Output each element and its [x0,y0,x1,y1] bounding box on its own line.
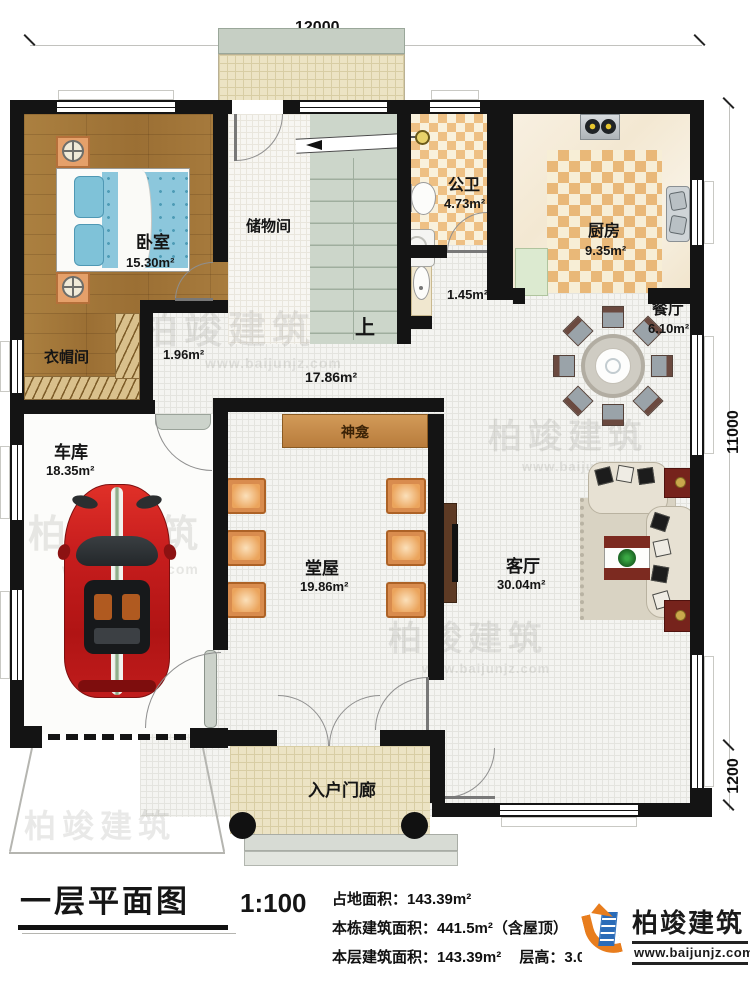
hall-chair [226,582,266,618]
logo-block: 柏竣建筑 www.baijunjz.com [582,898,750,968]
wall [380,730,445,746]
watermark-brand: 柏竣建筑 [488,420,648,454]
room-area-bedroom: 15.30m² [126,256,174,269]
title-underline [18,925,228,930]
side-table-lamp [675,477,686,488]
stat-total-area: 本栋建筑面积：441.5m²（含屋顶） [332,920,568,938]
wall [283,100,300,114]
sink-bowl [669,215,688,236]
dining-chair [602,404,624,426]
wall [10,680,24,748]
plant [618,549,636,567]
wall [638,803,712,817]
lamp-cross-line [72,140,74,162]
stat-floor-area: 本层建筑面积：143.39m² [332,949,501,966]
wall-kitchen-west [487,114,513,300]
cloakroom-wardrobe-side [115,313,140,379]
sofa-pillow [616,465,635,484]
garage-door-dashed [30,734,204,740]
room-label-porch: 入户门廊 [308,782,376,799]
sofa-pillow [653,539,672,558]
hall-chair [226,530,266,566]
watermark-url: www.baijunjz.com [205,356,342,370]
wall [690,455,704,655]
wall-kitchen-south [513,288,525,304]
hall-chair [386,478,426,514]
wash-basin [413,266,430,300]
room-label-kitchen: 厨房 [588,224,620,240]
room-label-hall: 堂屋 [305,560,339,577]
wall [10,520,24,590]
sheet-title: 一层平面图 [20,886,190,917]
title-underline-thin [22,933,236,934]
shower-head [415,130,430,145]
lamp-cross-line [72,276,74,298]
bed-pillow [74,176,104,218]
hall-chair [386,530,426,566]
porch-step-2 [244,851,458,866]
stove-burner [601,119,616,134]
car [64,484,170,698]
car-engine-grille [94,628,140,644]
room-label-cloakroom: 衣帽间 [44,350,89,365]
logo-brand: 柏竣建筑 [632,910,744,936]
sink-bowl [669,191,688,212]
window-sill [0,591,10,679]
wall-cloakroom-east [140,313,153,412]
stairs-up-label: 上 [355,318,375,338]
window-garage-left-2 [10,590,24,680]
wash-basin-drain [419,286,423,290]
door-opening-storage [232,100,283,114]
room-area-bathroom: 4.73m² [444,197,485,210]
room-area-living: 30.04m² [497,578,545,591]
stat-floor-area-line: 本层建筑面积：143.39m² 层高：3.0m [332,949,599,967]
window-bedroom-top [57,100,175,114]
logo-url: www.baijunjz.com [634,946,750,959]
stove-burner [585,119,600,134]
sofa-pillow [637,467,655,485]
door-leaf [175,298,213,301]
porch-step-1 [244,834,458,851]
door-leaf [234,114,237,161]
dining-chair [553,355,575,377]
wall-porch-east [430,746,445,803]
hall-chair [386,582,426,618]
door-leaf [445,796,495,799]
room-label-garage: 车库 [54,444,88,461]
tv [452,524,458,582]
window-sill [58,90,174,100]
back-porch-step [218,28,405,54]
floor-plan-sheet: 12000 11000 1200 柏竣建筑 www.baijunjz.com 柏… [0,0,750,981]
side-table-lamp [675,610,686,621]
window-sill [431,90,479,100]
wall-stairs-east [397,114,411,344]
watermark-brand: 柏竣建筑 [140,312,316,350]
room-label-living: 客厅 [506,558,540,575]
bed-pillow [74,224,104,266]
wall [690,245,704,335]
room-area-kitchen: 9.35m² [585,244,626,257]
porch-column [229,812,256,839]
wall-wash-south [397,316,432,329]
shrine-altar: 神龛 [282,414,428,448]
dining-table-center [605,358,621,374]
room-label-dining: 餐厅 [652,302,684,318]
coffee-table-band [604,568,650,580]
scale-label: 1:100 [240,890,307,916]
kitchen-rug [547,150,662,293]
dimension-label-right-lower: 1200 [726,753,742,799]
wall [213,730,277,746]
coffee-table-band [604,536,650,548]
wall-hall-north [213,398,444,412]
area-label-passage: 1.96m² [163,348,204,361]
logo-divider [632,962,748,965]
logo-divider [632,941,748,944]
area-label-hallway: 17.86m² [305,370,357,384]
room-area-garage: 18.35m² [46,464,94,477]
room-label-storage: 储物间 [246,219,291,234]
dining-chair [651,355,673,377]
staircase-rail-line [353,158,354,340]
watermark-brand: 柏竣建筑 [388,622,548,656]
porch-column [401,812,428,839]
hall-chair [226,478,266,514]
wall-bedroom-east [213,114,228,262]
dimension-label-right-upper: 11000 [726,404,742,460]
car-engine-part [122,594,140,620]
wall [480,100,704,114]
wall [387,100,430,114]
stat-land-area: 占地面积：143.39m² [332,891,471,909]
window-garage-left-1 [10,445,24,520]
watermark-brand: 柏竣建筑 [24,810,176,842]
car-engine-part [94,594,112,620]
wall-hall-east [428,414,444,680]
back-porch-floor [218,54,405,102]
window-sill [704,336,714,454]
cloakroom-wardrobe [24,376,140,400]
window-porch-top [300,100,387,114]
dining-chair [602,306,624,328]
window-bathroom-top [430,100,480,114]
door-leaf [426,677,429,730]
area-label-wash: 1.45m² [447,288,488,301]
logo-building-icon [584,906,630,960]
window-kitchen-right [690,180,704,245]
staircase-direction-arrow [306,140,322,150]
wall [10,100,24,340]
window-dining-right [690,335,704,455]
room-label-bathroom: 公卫 [448,178,480,194]
driveway-edge-bottom [9,852,225,854]
wall [175,100,232,114]
room-label-shrine: 神龛 [341,425,369,439]
window-sill [0,446,10,519]
room-area-hall: 19.86m² [300,580,348,593]
window-sill [501,817,637,827]
window-sill [0,341,10,392]
window-cloakroom-left [10,340,24,393]
car-rear-bumper [78,680,156,692]
window-sill [704,181,714,244]
wall-bathroom-south [411,245,447,258]
door-leaf [447,250,487,253]
car-windshield [76,536,158,566]
window-living-right [690,655,704,788]
wall-bedroom-south [140,300,228,313]
window-sill [704,656,714,787]
wall-garage-east [213,412,228,650]
sofa-pillow [651,565,670,584]
room-label-bedroom: 卧室 [136,234,170,251]
wall [690,100,704,180]
room-area-dining: 6.10m² [648,322,689,335]
window-living-bottom [500,803,638,817]
wall [432,803,500,817]
wall-garage-north [10,400,155,414]
